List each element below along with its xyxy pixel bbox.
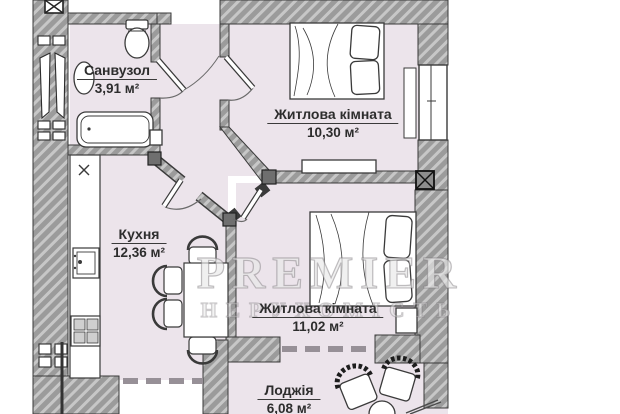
wall-bathroom-right-upper [151,24,160,62]
bedroom1-window [419,65,447,140]
stove-icon [71,316,100,346]
chair-icon [189,247,216,264]
stair-step [39,357,51,367]
kitchen-sink-icon [73,248,99,278]
bathtub-icon [77,112,153,147]
wall-top-main [220,0,448,24]
pillow [350,25,380,60]
dining-table-icon [184,263,228,337]
wall-right-above-window [418,24,448,65]
stair-step [53,36,65,45]
wall-loggia-top-left-block [226,337,280,362]
duct-box [150,130,162,145]
stair-step [53,121,65,129]
vent-shaft-icon [45,0,63,13]
stair-step [38,132,50,140]
floor-plan-screenshot: PREMIER НЕРУХОМІСТЬ Санвузол 3,91 м² Жит… [0,0,620,414]
chair-icon [164,300,182,327]
floor-plan-canvas [0,0,620,414]
bed-icon [290,23,384,99]
wall-bedroom1-left-lower [220,100,229,130]
bedroom1-radiator [404,68,416,138]
washbasin-icon [74,62,94,94]
tv-stand-icon [302,160,376,173]
pillow [350,60,380,94]
stair-step [39,344,51,354]
wall-bottom-left [33,376,119,414]
wall-node-1 [262,170,276,184]
wall-entry-stub [157,13,171,24]
stair-flight [40,53,50,118]
stair-step [38,121,50,129]
pillow [384,259,413,303]
pillow [384,215,413,259]
toilet-icon [125,20,149,58]
nightstand-icon [396,308,417,333]
wall-node-3 [148,152,161,165]
stair-flight [55,53,65,118]
chair-icon [189,337,216,354]
stair-step [38,36,50,45]
column-icon [416,171,434,189]
chair-icon [164,267,182,294]
bed-icon [310,212,416,306]
wall-bedroom1-left-upper [220,24,229,57]
stair-step [53,132,65,140]
